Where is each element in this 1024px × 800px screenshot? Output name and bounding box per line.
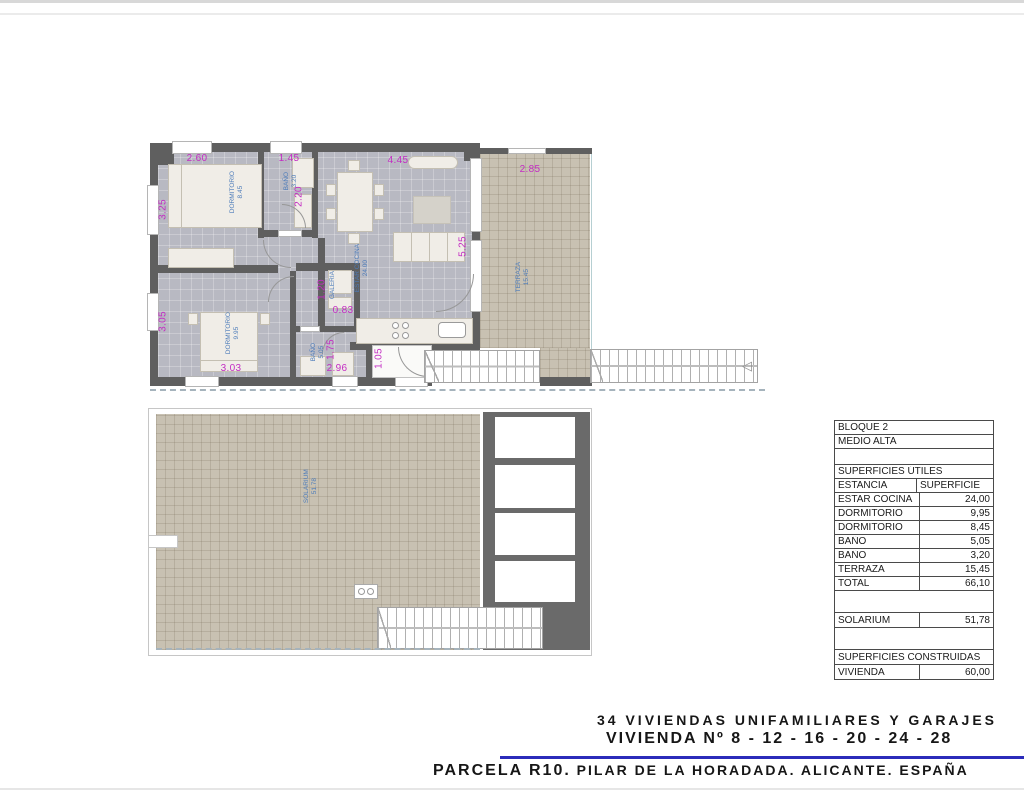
room-name: ESTAR COCINA (354, 236, 362, 300)
table-row-spacer (835, 449, 993, 465)
skylight-dome-icon (358, 588, 365, 595)
stair-break-line (591, 350, 603, 382)
room-name: DORMITORIO (229, 160, 237, 224)
stove-burner-icon (402, 322, 409, 329)
chair (326, 208, 336, 220)
terrace-floor-lower (540, 348, 590, 378)
window-living-glass (470, 158, 482, 232)
room-name: DORMITORIO (225, 301, 233, 365)
kitchen-sink (438, 322, 466, 338)
room-area: 5.05 (318, 320, 326, 384)
room-label-dormitorio-2: DORMITORIO 9.95 (225, 301, 241, 365)
location-label: PILAR DE LA HORADADA. ALICANTE. ESPAÑA (571, 762, 969, 778)
room-area: 9.95 (233, 301, 241, 365)
room-name: BAÑO (283, 149, 291, 213)
table-row-spacer (835, 628, 993, 650)
stove-burner-icon (392, 322, 399, 329)
room-cell: TERRAZA (835, 564, 919, 575)
table-row-medio: MEDIO ALTA (835, 435, 993, 449)
stair-direction-arrow-icon: ◁ (742, 359, 752, 372)
room-name: GALERIA (329, 253, 337, 317)
terrace-top-opening (508, 148, 546, 154)
room-area: 51.78 (311, 454, 319, 518)
glass-balustrade (591, 152, 592, 378)
nightstand (260, 313, 270, 325)
area-cell: 9,95 (919, 507, 993, 520)
table-header-row: ESTANCIA SUPERFICIE (835, 479, 993, 493)
room-cell: TOTAL (835, 578, 919, 589)
room-label-bath-2: BAÑO 5.05 (310, 320, 326, 384)
stair-interior (424, 350, 540, 383)
pergola-opening (495, 465, 575, 508)
pergola-opening (495, 561, 575, 602)
project-title: 34 VIVIENDAS UNIFAMILIARES Y GARAJES (597, 712, 997, 728)
room-cell: DORMITORIO (835, 522, 919, 533)
dimension-label: 2.85 (513, 164, 547, 175)
area-cell: 8,45 (919, 521, 993, 534)
pergola-opening (495, 417, 575, 458)
room-label-bath-1: BAÑO 3.20 (283, 149, 299, 213)
pergola-opening (495, 513, 575, 555)
chair (374, 208, 384, 220)
nightstand (188, 313, 198, 325)
column-header-room: ESTANCIA (835, 480, 916, 491)
table-row-section-built: SUPERFICIES CONSTRUIDAS (835, 650, 993, 665)
dimension-label: 5.25 (458, 230, 469, 264)
closet-dorm1 (168, 248, 234, 268)
table-row: TERRAZA 15,45 (835, 563, 993, 577)
area-cell: 60,00 (919, 665, 993, 679)
room-cell: SOLARIUM (835, 615, 919, 626)
room-label-dormitorio-1: DORMITORIO 8.45 (229, 160, 245, 224)
dimension-label: 4.45 (381, 155, 415, 166)
area-cell: 24,00 (919, 493, 993, 506)
table-cell: BLOQUE 2 (835, 422, 993, 433)
room-label-solarium: SOLARIUM 51.78 (303, 454, 319, 518)
drawing-sheet: ◁ 2.60 1.45 4.45 2.85 3.25 2.20 5.25 1.2… (0, 0, 1024, 800)
chair (326, 184, 336, 196)
table-row-vivienda: VIVIENDA 60,00 (835, 665, 993, 679)
area-cell: 51,78 (919, 613, 993, 627)
title-accent-rule (500, 756, 1024, 759)
area-cell: 3,20 (919, 549, 993, 562)
room-cell: ESTAR COCINA (835, 494, 919, 505)
room-cell: BAÑO (835, 550, 919, 561)
room-label-galeria: GALERIA (329, 253, 337, 317)
window-bottom-bath2 (332, 376, 358, 387)
room-label-living-kitchen: ESTAR COCINA 24.00 (354, 236, 370, 300)
wall-left (150, 143, 158, 386)
terrace-floor (480, 152, 590, 348)
room-cell: VIVIENDA (835, 667, 919, 678)
table-section-heading: SUPERFICIES CONSTRUIDAS (835, 652, 993, 663)
room-name: BAÑO (310, 320, 318, 384)
window-bottom-dorm2 (185, 376, 219, 387)
solarium-edge-notch (148, 535, 178, 548)
stove-burner-icon (402, 332, 409, 339)
table-row: DORMITORIO 8,45 (835, 521, 993, 535)
rug (413, 196, 451, 224)
table-row-bloque: BLOQUE 2 (835, 421, 993, 435)
table-row-spacer (835, 591, 993, 613)
stove-burner-icon (392, 332, 399, 339)
room-area: 24.00 (362, 236, 370, 300)
sofa (393, 232, 465, 262)
stair-break-line (378, 608, 391, 648)
dashed-reference-line (156, 648, 480, 650)
column-header-area: SUPERFICIE (916, 479, 993, 492)
room-name: SOLARIUM (303, 454, 311, 518)
dashed-reference-line (150, 389, 765, 391)
sheet-top-border (0, 0, 1024, 3)
dimension-label: 1.20 (317, 273, 328, 307)
area-cell: 66,10 (919, 577, 993, 590)
dwelling-numbers-title: VIVIENDA Nº 8 - 12 - 16 - 20 - 24 - 28 (606, 730, 952, 748)
table-cell: MEDIO ALTA (835, 436, 993, 447)
table-row: BAÑO 5,05 (835, 535, 993, 549)
location-title: PARCELA R10. PILAR DE LA HORADADA. ALICA… (433, 762, 969, 780)
table-row: BAÑO 3,20 (835, 549, 993, 563)
dimension-label: 1.05 (374, 342, 385, 376)
stair-solarium (377, 607, 543, 649)
table-row: DORMITORIO 9,95 (835, 507, 993, 521)
room-cell: DORMITORIO (835, 508, 919, 519)
wall-terrace-bottom (540, 377, 592, 386)
room-cell: BAÑO (835, 536, 919, 547)
table-row-total: TOTAL 66,10 (835, 577, 993, 591)
table-row-solarium: SOLARIUM 51,78 (835, 613, 993, 628)
parcel-label: PARCELA R10. (433, 762, 571, 779)
sheet-bottom-border (0, 788, 1024, 790)
table-row: ESTAR COCINA 24,00 (835, 493, 993, 507)
dimension-label: 1.75 (326, 333, 337, 367)
area-cell: 5,05 (919, 535, 993, 548)
table-row-section-useful: SUPERFICIES ÚTILES (835, 465, 993, 479)
sideboard-living (408, 156, 458, 169)
dimension-label: 3.05 (158, 305, 169, 339)
room-label-terraza: TERRAZA 15.45 (515, 245, 531, 309)
sheet-top-inner-border (0, 13, 1024, 15)
dimension-label: 3.25 (158, 193, 169, 227)
stair-break-line (425, 351, 439, 382)
room-name: TERRAZA (515, 245, 523, 309)
stair-exterior (590, 349, 758, 383)
room-area: 3.20 (291, 149, 299, 213)
chair (374, 184, 384, 196)
bath1-door-opening (278, 230, 302, 237)
chair (348, 160, 360, 171)
dining-table (337, 172, 373, 232)
room-area: 15.45 (523, 245, 531, 309)
bed-dorm1 (168, 164, 262, 228)
area-cell: 15,45 (919, 563, 993, 576)
table-section-heading: SUPERFICIES ÚTILES (835, 466, 993, 477)
dimension-label: 2.60 (180, 153, 214, 164)
surfaces-table: BLOQUE 2 MEDIO ALTA SUPERFICIES ÚTILES E… (834, 420, 994, 680)
room-area: 8.45 (237, 160, 245, 224)
skylight-dome-icon (367, 588, 374, 595)
